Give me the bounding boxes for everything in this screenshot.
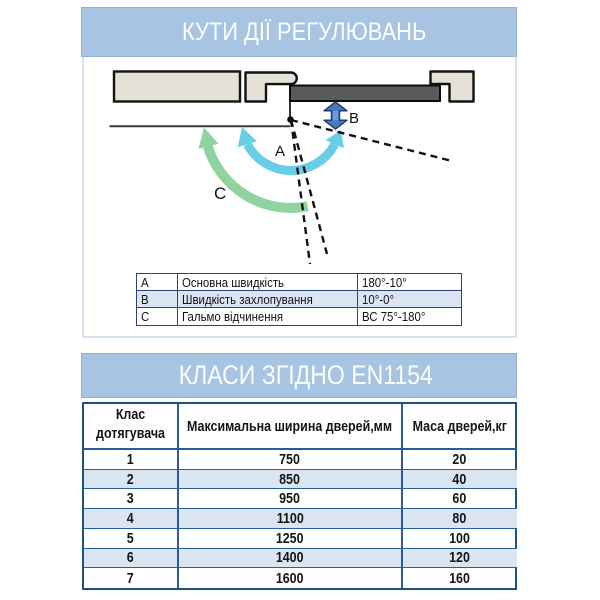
svg-text:A: A bbox=[275, 143, 285, 160]
svg-text:C: C bbox=[214, 184, 226, 203]
svg-text:B: B bbox=[349, 110, 359, 127]
